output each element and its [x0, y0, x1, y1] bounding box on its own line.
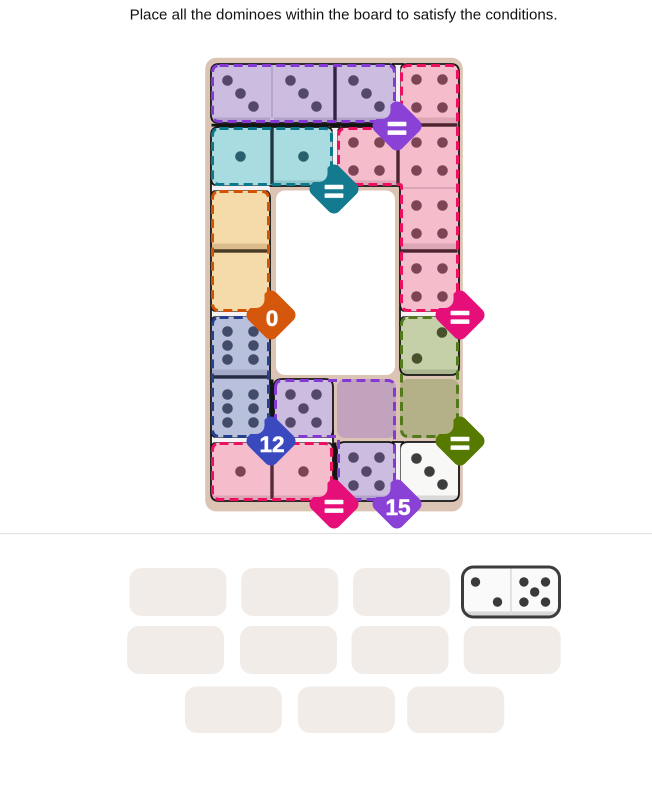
svg-text:12: 12 — [259, 432, 284, 457]
svg-text:15: 15 — [385, 495, 410, 520]
svg-text:0: 0 — [266, 306, 279, 331]
svg-text:Place all the dominoes within: Place all the dominoes within the board … — [130, 7, 558, 24]
